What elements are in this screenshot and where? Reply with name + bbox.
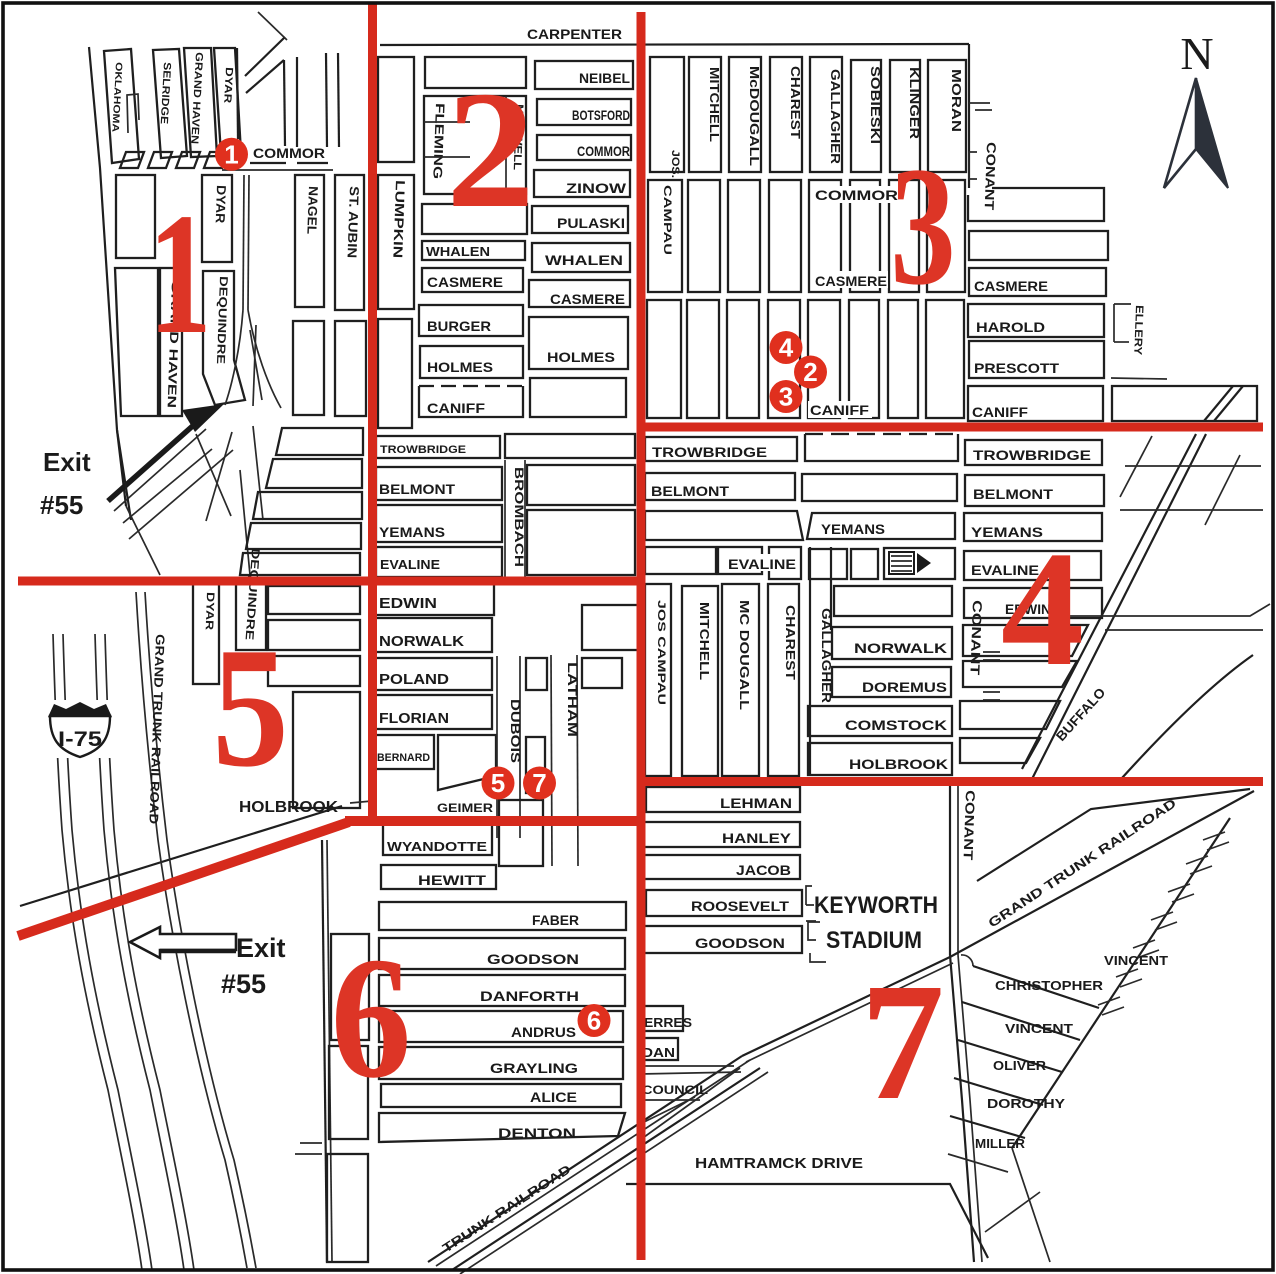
svg-text:ROOSEVELT: ROOSEVELT [691, 899, 790, 914]
svg-text:HANLEY: HANLEY [722, 831, 791, 846]
svg-text:3: 3 [779, 382, 793, 412]
svg-text:EVALINE: EVALINE [728, 557, 796, 572]
svg-text:JACOB: JACOB [736, 863, 791, 878]
svg-text:N: N [1180, 28, 1213, 79]
svg-text:6: 6 [587, 1006, 601, 1036]
svg-text:CONANT: CONANT [961, 790, 978, 861]
svg-text:JOS.: JOS. [669, 150, 681, 178]
svg-text:FLORIAN: FLORIAN [379, 711, 449, 727]
svg-text:2: 2 [446, 58, 535, 243]
svg-text:GOODSON: GOODSON [487, 951, 579, 967]
svg-text:HOLMES: HOLMES [427, 359, 493, 375]
svg-text:KLINGER: KLINGER [907, 67, 921, 139]
svg-text:CASMERE: CASMERE [815, 273, 887, 289]
svg-text:GALLAGHER: GALLAGHER [828, 69, 842, 164]
svg-text:BELMONT: BELMONT [651, 483, 729, 499]
svg-text:CANIFF: CANIFF [972, 404, 1028, 420]
svg-text:DENTON: DENTON [498, 1125, 576, 1141]
svg-text:MC DOUGALL: MC DOUGALL [737, 600, 751, 710]
svg-text:DAN: DAN [642, 1045, 675, 1060]
svg-text:NORWALK: NORWALK [379, 634, 465, 650]
svg-text:#55: #55 [40, 490, 83, 520]
svg-text:CANIFF: CANIFF [810, 403, 869, 418]
svg-text:BROMBACH: BROMBACH [512, 467, 526, 567]
svg-text:CANIFF: CANIFF [427, 400, 486, 416]
svg-text:YEMANS: YEMANS [821, 522, 885, 537]
svg-text:CASMERE: CASMERE [974, 279, 1048, 294]
svg-text:VINCENT: VINCENT [1104, 953, 1168, 968]
svg-text:BELMONT: BELMONT [379, 482, 456, 497]
svg-text:3: 3 [890, 132, 955, 320]
svg-text:McDOUGALL: McDOUGALL [747, 66, 761, 166]
svg-text:TROWBRIDGE: TROWBRIDGE [973, 448, 1091, 463]
svg-text:NAGEL: NAGEL [304, 186, 321, 235]
svg-text:JOS CAMPAU: JOS CAMPAU [655, 600, 667, 705]
svg-text:HOLBROOK: HOLBROOK [849, 756, 948, 772]
svg-text:CASMERE: CASMERE [427, 275, 503, 290]
svg-text:WHALEN: WHALEN [545, 252, 623, 268]
svg-text:NORWALK: NORWALK [854, 640, 947, 656]
svg-text:CAMPAU: CAMPAU [661, 185, 673, 255]
svg-text:PULASKI: PULASKI [557, 215, 625, 231]
svg-text:OLIVER: OLIVER [993, 1058, 1047, 1073]
svg-text:CASMERE: CASMERE [550, 291, 625, 307]
svg-text:DOROTHY: DOROTHY [987, 1096, 1065, 1111]
svg-text:6: 6 [331, 922, 412, 1115]
svg-text:FLEMING: FLEMING [430, 103, 447, 179]
svg-text:ALICE: ALICE [530, 1090, 577, 1105]
svg-text:HAMTRAMCK DRIVE: HAMTRAMCK DRIVE [695, 1156, 863, 1172]
svg-text:DUBOIS: DUBOIS [508, 699, 522, 763]
svg-text:COMMOR: COMMOR [577, 144, 630, 159]
svg-text:7: 7 [532, 768, 546, 798]
svg-text:LEHMAN: LEHMAN [720, 796, 792, 811]
svg-text:BERNARD: BERNARD [377, 752, 430, 764]
svg-text:ELLERY: ELLERY [1131, 305, 1145, 356]
svg-text:YEMANS: YEMANS [379, 525, 445, 540]
svg-text:Exit: Exit [43, 447, 91, 477]
svg-text:EVALINE: EVALINE [380, 557, 440, 572]
svg-text:ERRES: ERRES [644, 1015, 692, 1030]
svg-text:1: 1 [224, 139, 238, 169]
svg-text:EDWIN: EDWIN [379, 595, 437, 612]
svg-text:GEIMER: GEIMER [437, 801, 493, 815]
svg-text:HEWITT: HEWITT [418, 872, 487, 888]
svg-text:GRAYLING: GRAYLING [490, 1060, 578, 1076]
svg-text:CONANT: CONANT [982, 142, 999, 211]
svg-text:TROWBRIDGE: TROWBRIDGE [652, 445, 767, 460]
svg-text:ZINOW: ZINOW [566, 180, 627, 196]
svg-text:KEYWORTH: KEYWORTH [814, 892, 938, 919]
svg-text:5: 5 [491, 768, 505, 798]
svg-text:7: 7 [861, 949, 945, 1135]
svg-text:NEIBEL: NEIBEL [579, 71, 630, 86]
svg-text:CONANT: CONANT [967, 600, 985, 676]
svg-text:5: 5 [212, 613, 289, 803]
svg-text:#55: #55 [221, 969, 266, 999]
svg-text:DOREMUS: DOREMUS [862, 679, 947, 695]
svg-text:COMSTOCK: COMSTOCK [845, 717, 947, 733]
svg-text:1: 1 [148, 177, 212, 370]
svg-text:LUMPKIN: LUMPKIN [390, 180, 408, 258]
svg-text:MITCHELL: MITCHELL [697, 602, 711, 680]
svg-text:LATHAM: LATHAM [565, 662, 579, 737]
svg-text:CARPENTER: CARPENTER [527, 27, 622, 42]
svg-text:DANFORTH: DANFORTH [480, 988, 579, 1004]
svg-text:VINCENT: VINCENT [1005, 1021, 1073, 1036]
svg-text:PRESCOTT: PRESCOTT [974, 360, 1059, 376]
svg-text:HOLMES: HOLMES [547, 349, 615, 365]
svg-text:COMMOR: COMMOR [253, 146, 325, 161]
svg-text:CHAREST: CHAREST [788, 66, 802, 139]
svg-text:MITCHELL: MITCHELL [707, 67, 721, 142]
svg-text:TROWBRIDGE: TROWBRIDGE [380, 444, 466, 456]
svg-text:BURGER: BURGER [427, 318, 491, 334]
svg-text:BELMONT: BELMONT [973, 486, 1054, 502]
svg-text:HAROLD: HAROLD [976, 319, 1045, 335]
svg-text:POLAND: POLAND [379, 672, 449, 688]
svg-text:WHALEN: WHALEN [426, 245, 490, 259]
svg-text:WYANDOTTE: WYANDOTTE [387, 839, 487, 854]
svg-text:4: 4 [1001, 517, 1084, 700]
svg-text:CHAREST: CHAREST [783, 605, 797, 680]
svg-text:DYAR: DYAR [213, 185, 229, 224]
svg-text:ANDRUS: ANDRUS [511, 1025, 576, 1040]
svg-text:2: 2 [803, 357, 817, 387]
svg-text:GOODSON: GOODSON [695, 936, 785, 951]
svg-text:4: 4 [779, 333, 794, 363]
svg-text:COMMOR: COMMOR [815, 187, 898, 203]
svg-text:FABER: FABER [532, 913, 579, 928]
svg-text:CHRISTOPHER: CHRISTOPHER [995, 978, 1104, 993]
svg-text:MORAN: MORAN [949, 69, 963, 132]
svg-text:I-75: I-75 [58, 728, 102, 751]
svg-text:DYAR: DYAR [221, 67, 235, 104]
svg-text:MILLER: MILLER [975, 1137, 1025, 1151]
svg-text:COUNCIL: COUNCIL [642, 1083, 708, 1097]
svg-text:BOTSFORD: BOTSFORD [572, 108, 630, 123]
svg-text:Exit: Exit [236, 933, 286, 963]
svg-text:ST. AUBIN: ST. AUBIN [344, 186, 362, 258]
svg-text:SOBIESKI: SOBIESKI [868, 66, 882, 144]
